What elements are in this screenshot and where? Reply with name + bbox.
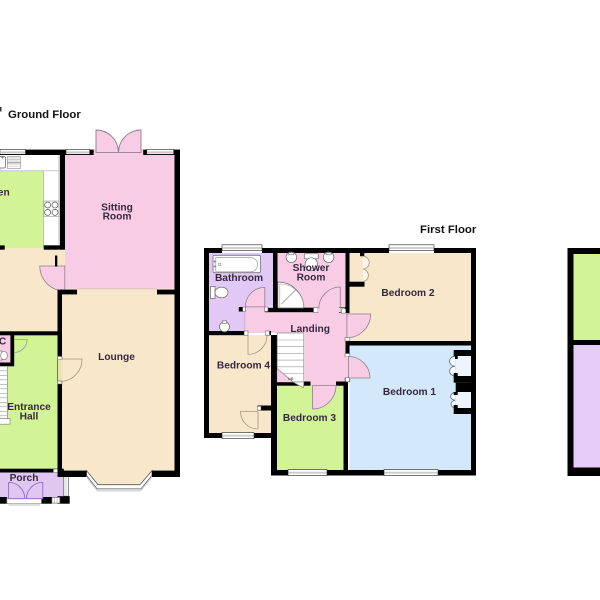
svg-text:Ground Floor: Ground Floor <box>8 109 81 121</box>
svg-text:Bedroom 4: Bedroom 4 <box>217 361 271 372</box>
svg-text:Bathroom: Bathroom <box>215 273 263 284</box>
svg-text:First Floor: First Floor <box>420 224 477 236</box>
svg-text:Kitchen: Kitchen <box>0 188 10 199</box>
svg-text:up: up <box>288 376 294 381</box>
svg-text:Porch: Porch <box>10 473 39 484</box>
svg-text:Landing: Landing <box>290 324 330 335</box>
svg-text:WC: WC <box>0 336 7 347</box>
svg-text:Bedroom 3: Bedroom 3 <box>283 413 337 424</box>
svg-text:Room: Room <box>297 273 326 284</box>
svg-text:Lounge: Lounge <box>98 352 135 363</box>
svg-text:Bedroom 2: Bedroom 2 <box>381 288 435 299</box>
svg-text:Hall: Hall <box>20 412 39 423</box>
svg-text:Room: Room <box>103 212 132 223</box>
svg-text:Bedroom 1: Bedroom 1 <box>383 387 437 398</box>
